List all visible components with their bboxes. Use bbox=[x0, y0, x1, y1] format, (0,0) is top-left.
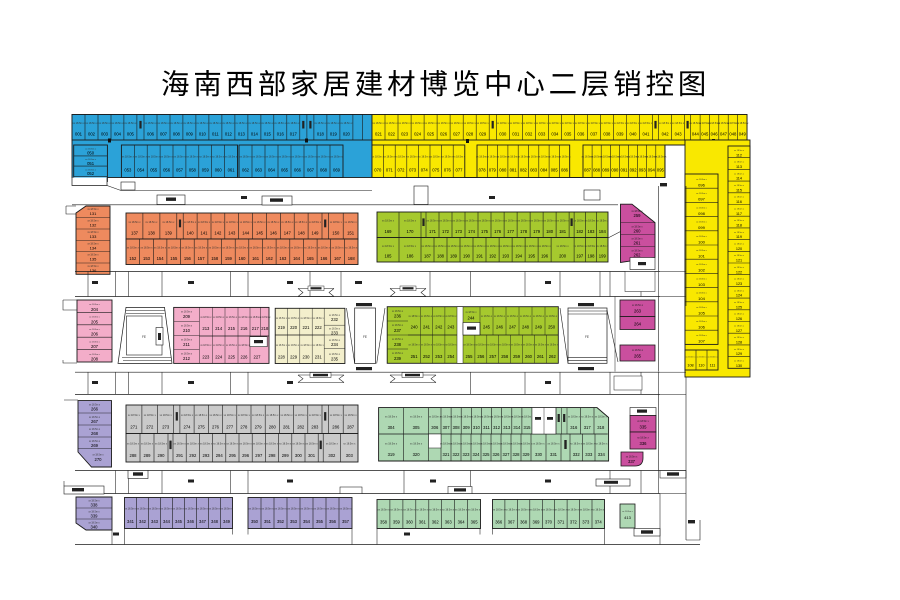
svg-text:260: 260 bbox=[525, 354, 533, 359]
svg-text:162: 162 bbox=[266, 256, 274, 261]
svg-text:166: 166 bbox=[320, 256, 328, 261]
svg-text:036: 036 bbox=[577, 131, 585, 136]
svg-text:xx 18.5m x: xx 18.5m x bbox=[309, 221, 322, 224]
svg-text:xx 18.5m x: xx 18.5m x bbox=[318, 247, 331, 250]
svg-text:332: 332 bbox=[573, 452, 581, 457]
svg-text:xx 18.5m x: xx 18.5m x bbox=[696, 278, 707, 280]
svg-text:143: 143 bbox=[228, 230, 236, 235]
svg-text:362: 362 bbox=[432, 519, 440, 524]
svg-text:207: 207 bbox=[91, 344, 99, 349]
svg-text:xx 18.5m x: xx 18.5m x bbox=[463, 345, 475, 347]
svg-text:xx 18.5m x: xx 18.5m x bbox=[213, 442, 226, 445]
svg-text:xx 18.5m x: xx 18.5m x bbox=[583, 443, 596, 446]
svg-text:365: 365 bbox=[471, 519, 479, 524]
svg-text:054: 054 bbox=[137, 168, 145, 173]
svg-text:043: 043 bbox=[675, 131, 683, 136]
svg-text:093: 093 bbox=[639, 168, 647, 173]
svg-text:xx 18.5m x: xx 18.5m x bbox=[145, 221, 158, 224]
svg-text:125: 125 bbox=[736, 305, 742, 309]
svg-text:xx 18.5m x: xx 18.5m x bbox=[161, 155, 174, 158]
svg-text:xx 18.5m x: xx 18.5m x bbox=[696, 250, 707, 252]
svg-text:219: 219 bbox=[278, 325, 286, 330]
svg-text:082: 082 bbox=[520, 168, 528, 173]
svg-text:277: 277 bbox=[226, 424, 234, 429]
svg-text:xx 18.5m x: xx 18.5m x bbox=[98, 122, 111, 125]
svg-text:300: 300 bbox=[295, 453, 303, 458]
svg-text:xx 18.5m x: xx 18.5m x bbox=[85, 122, 98, 125]
svg-text:xx 18.5m x: xx 18.5m x bbox=[654, 155, 667, 158]
svg-text:xx 18.5m x: xx 18.5m x bbox=[416, 509, 429, 512]
svg-text:131: 131 bbox=[90, 211, 97, 216]
svg-text:xx 18.5m x: xx 18.5m x bbox=[696, 222, 707, 224]
svg-text:344: 344 bbox=[163, 519, 171, 524]
svg-text:343: 343 bbox=[151, 519, 159, 524]
svg-text:074: 074 bbox=[421, 168, 429, 173]
svg-text:355: 355 bbox=[316, 519, 324, 524]
svg-text:xx 18.5m x: xx 18.5m x bbox=[198, 221, 211, 224]
svg-text:xx 18.5m x: xx 18.5m x bbox=[542, 509, 555, 512]
svg-text:056: 056 bbox=[163, 168, 171, 173]
svg-text:051: 051 bbox=[87, 161, 95, 166]
svg-text:xx 18.5m x: xx 18.5m x bbox=[404, 220, 417, 223]
svg-text:209: 209 bbox=[183, 314, 191, 319]
svg-text:331: 331 bbox=[550, 452, 558, 457]
svg-text:xx 18.5m x: xx 18.5m x bbox=[195, 414, 208, 417]
svg-text:298: 298 bbox=[269, 453, 277, 458]
svg-text:xx 18.5m x: xx 18.5m x bbox=[267, 221, 280, 224]
svg-text:067: 067 bbox=[307, 168, 315, 173]
svg-text:xx 18.5m x: xx 18.5m x bbox=[592, 509, 605, 512]
svg-text:324: 324 bbox=[473, 452, 481, 457]
svg-text:xx 18.5m x: xx 18.5m x bbox=[168, 247, 181, 250]
svg-text:102: 102 bbox=[698, 268, 705, 273]
svg-text:118: 118 bbox=[736, 224, 742, 228]
svg-text:xx 18.5m x: xx 18.5m x bbox=[127, 442, 140, 445]
svg-text:xx 18.5m x: xx 18.5m x bbox=[222, 122, 235, 125]
svg-text:316: 316 bbox=[570, 425, 578, 430]
svg-text:336: 336 bbox=[640, 441, 648, 446]
svg-text:xx 18.5m x: xx 18.5m x bbox=[465, 220, 478, 223]
svg-text:xx 18.5m x: xx 18.5m x bbox=[455, 509, 468, 512]
svg-text:326: 326 bbox=[493, 452, 501, 457]
svg-text:xx 18.5m x: xx 18.5m x bbox=[477, 122, 490, 125]
svg-text:019: 019 bbox=[330, 131, 338, 136]
svg-text:012: 012 bbox=[225, 131, 233, 136]
svg-text:xx 18.5m x: xx 18.5m x bbox=[200, 442, 213, 445]
svg-text:xx 18.5m x: xx 18.5m x bbox=[287, 122, 300, 125]
svg-text:106: 106 bbox=[698, 325, 705, 330]
svg-text:xx 18.5m x: xx 18.5m x bbox=[549, 122, 562, 125]
svg-text:282: 282 bbox=[297, 424, 305, 429]
svg-text:210: 210 bbox=[183, 328, 191, 333]
svg-text:189: 189 bbox=[450, 254, 458, 259]
svg-text:347: 347 bbox=[199, 519, 207, 524]
svg-text:065: 065 bbox=[281, 168, 289, 173]
svg-text:306: 306 bbox=[431, 425, 439, 430]
svg-text:141: 141 bbox=[201, 230, 209, 235]
svg-text:003: 003 bbox=[101, 131, 109, 136]
svg-text:320: 320 bbox=[413, 452, 421, 457]
svg-text:070: 070 bbox=[374, 168, 382, 173]
svg-text:xx 18.5m x: xx 18.5m x bbox=[481, 316, 493, 318]
svg-text:167: 167 bbox=[334, 256, 342, 261]
svg-text:208: 208 bbox=[91, 357, 99, 362]
svg-text:278: 278 bbox=[240, 424, 248, 429]
svg-text:xx 18.5m x: xx 18.5m x bbox=[412, 122, 425, 125]
svg-text:xx 18.5m x: xx 18.5m x bbox=[445, 316, 457, 318]
svg-text:xx 18.5m x: xx 18.5m x bbox=[196, 507, 209, 510]
svg-text:315: 315 bbox=[524, 425, 532, 430]
svg-text:xx 18.5m x: xx 18.5m x bbox=[306, 442, 319, 445]
svg-text:249: 249 bbox=[535, 325, 543, 330]
svg-text:309: 309 bbox=[463, 425, 471, 430]
svg-text:xx 18.5m x: xx 18.5m x bbox=[340, 122, 353, 125]
svg-text:095: 095 bbox=[657, 168, 665, 173]
svg-text:058: 058 bbox=[189, 168, 197, 173]
svg-text:xx 18.5m x: xx 18.5m x bbox=[505, 220, 518, 223]
svg-text:024: 024 bbox=[414, 131, 422, 136]
svg-text:354: 354 bbox=[303, 519, 311, 524]
svg-text:xx 18.5m x: xx 18.5m x bbox=[127, 247, 140, 250]
svg-text:xx 18.5m x: xx 18.5m x bbox=[588, 122, 601, 125]
svg-text:006: 006 bbox=[147, 131, 155, 136]
svg-text:372: 372 bbox=[570, 519, 578, 524]
svg-text:319: 319 bbox=[388, 452, 396, 457]
svg-text:335: 335 bbox=[640, 425, 648, 430]
svg-text:120: 120 bbox=[736, 247, 742, 251]
svg-text:364: 364 bbox=[458, 519, 466, 524]
svg-text:040: 040 bbox=[630, 131, 638, 136]
svg-text:064: 064 bbox=[268, 168, 276, 173]
svg-text:094: 094 bbox=[648, 168, 656, 173]
svg-text:005: 005 bbox=[127, 131, 135, 136]
svg-text:360: 360 bbox=[406, 519, 414, 524]
svg-text:349: 349 bbox=[223, 519, 231, 524]
svg-text:xx 18.5m x: xx 18.5m x bbox=[209, 414, 222, 417]
svg-text:251: 251 bbox=[411, 354, 419, 359]
svg-text:114: 114 bbox=[736, 177, 742, 181]
svg-text:xx 18.5m x: xx 18.5m x bbox=[235, 122, 248, 125]
svg-text:xx 18.5m x: xx 18.5m x bbox=[520, 443, 533, 446]
svg-text:128: 128 bbox=[736, 341, 742, 345]
svg-text:154: 154 bbox=[157, 256, 165, 261]
svg-text:055: 055 bbox=[150, 168, 158, 173]
svg-text:xx 18.5m x: xx 18.5m x bbox=[330, 155, 343, 158]
svg-text:xx 18.5m x: xx 18.5m x bbox=[567, 509, 580, 512]
svg-text:194: 194 bbox=[515, 254, 523, 259]
svg-text:206: 206 bbox=[91, 332, 99, 337]
svg-text:xx 18.5m x: xx 18.5m x bbox=[500, 245, 513, 248]
svg-text:xx 18.5m x: xx 18.5m x bbox=[736, 122, 749, 125]
svg-text:242: 242 bbox=[435, 325, 443, 330]
svg-text:xx 18.5m x: xx 18.5m x bbox=[181, 247, 194, 250]
svg-text:xx 18.5m x: xx 18.5m x bbox=[696, 179, 707, 181]
svg-text:262: 262 bbox=[549, 354, 557, 359]
svg-text:199: 199 bbox=[599, 254, 607, 259]
svg-text:225: 225 bbox=[228, 355, 236, 360]
svg-text:xx 18.5m x: xx 18.5m x bbox=[170, 122, 183, 125]
svg-text:048: 048 bbox=[729, 131, 737, 136]
svg-text:216: 216 bbox=[241, 326, 249, 331]
svg-text:257: 257 bbox=[489, 354, 497, 359]
svg-text:133: 133 bbox=[90, 234, 97, 239]
svg-text:317: 317 bbox=[584, 425, 592, 430]
svg-text:053: 053 bbox=[124, 168, 132, 173]
svg-text:240: 240 bbox=[411, 325, 419, 330]
svg-text:025: 025 bbox=[427, 131, 435, 136]
svg-text:172: 172 bbox=[442, 229, 450, 234]
svg-text:xx 18.5m x: xx 18.5m x bbox=[317, 155, 330, 158]
svg-text:xx 18.5m x: xx 18.5m x bbox=[696, 207, 707, 209]
svg-text:xx 18.5m x: xx 18.5m x bbox=[281, 221, 294, 224]
svg-text:127: 127 bbox=[736, 329, 742, 333]
svg-text:xx 18.5m x: xx 18.5m x bbox=[734, 232, 744, 234]
svg-text:151: 151 bbox=[347, 230, 355, 235]
svg-text:xx 18.5m x: xx 18.5m x bbox=[160, 507, 173, 510]
svg-text:xx 18.5m x: xx 18.5m x bbox=[155, 442, 168, 445]
svg-text:xx 18.5m x: xx 18.5m x bbox=[421, 345, 433, 347]
svg-text:246: 246 bbox=[496, 325, 504, 330]
svg-text:xx 18.5m x: xx 18.5m x bbox=[696, 293, 707, 295]
svg-text:xx 18.5m x: xx 18.5m x bbox=[468, 509, 481, 512]
svg-text:101: 101 bbox=[698, 254, 705, 259]
svg-text:152: 152 bbox=[129, 256, 137, 261]
svg-text:333: 333 bbox=[585, 452, 593, 457]
svg-text:xx 18.5m x: xx 18.5m x bbox=[124, 507, 137, 510]
svg-text:204: 204 bbox=[91, 307, 99, 312]
svg-text:247: 247 bbox=[509, 325, 517, 330]
svg-text:363: 363 bbox=[445, 519, 453, 524]
svg-text:xx 18.5m x: xx 18.5m x bbox=[89, 354, 100, 356]
svg-text:337: 337 bbox=[628, 459, 636, 464]
svg-text:xx 18.5m x: xx 18.5m x bbox=[447, 245, 460, 248]
svg-text:xx 18.5m x: xx 18.5m x bbox=[513, 245, 526, 248]
svg-text:039: 039 bbox=[617, 131, 625, 136]
svg-text:xx 18.5m x: xx 18.5m x bbox=[421, 245, 434, 248]
svg-text:190: 190 bbox=[463, 254, 471, 259]
svg-text:xx 18.5m x: xx 18.5m x bbox=[734, 361, 744, 363]
svg-text:xx 18.5m x: xx 18.5m x bbox=[510, 122, 523, 125]
svg-text:045: 045 bbox=[701, 131, 709, 136]
svg-text:022: 022 bbox=[388, 131, 396, 136]
svg-text:xx 18.5m x: xx 18.5m x bbox=[421, 316, 433, 318]
svg-text:170: 170 bbox=[407, 229, 415, 234]
svg-text:258: 258 bbox=[501, 354, 509, 359]
svg-text:310: 310 bbox=[473, 425, 481, 430]
svg-text:367: 367 bbox=[508, 519, 516, 524]
svg-text:xx 18.5m x: xx 18.5m x bbox=[89, 317, 100, 319]
svg-text:307: 307 bbox=[443, 425, 451, 430]
svg-text:xx 18.5m x: xx 18.5m x bbox=[532, 443, 545, 446]
svg-text:287: 287 bbox=[347, 424, 355, 429]
svg-text:029: 029 bbox=[479, 131, 487, 136]
svg-text:297: 297 bbox=[255, 453, 263, 458]
svg-text:229: 229 bbox=[290, 355, 298, 360]
svg-text:283: 283 bbox=[311, 424, 319, 429]
svg-text:302: 302 bbox=[328, 453, 336, 458]
svg-text:370: 370 bbox=[545, 519, 553, 524]
svg-text:xx 18.5m x: xx 18.5m x bbox=[187, 442, 200, 445]
svg-text:034: 034 bbox=[551, 131, 559, 136]
svg-text:xx 18.5m x: xx 18.5m x bbox=[507, 316, 519, 318]
svg-text:129: 129 bbox=[736, 352, 742, 356]
svg-text:107: 107 bbox=[698, 339, 705, 344]
svg-text:xx 18.5m x: xx 18.5m x bbox=[580, 509, 593, 512]
svg-text:xx 18.5m x: xx 18.5m x bbox=[287, 507, 300, 510]
svg-text:164: 164 bbox=[293, 256, 301, 261]
svg-text:215: 215 bbox=[228, 326, 236, 331]
svg-text:068: 068 bbox=[320, 168, 328, 173]
svg-text:xx 18.5m x: xx 18.5m x bbox=[278, 155, 291, 158]
svg-text:192: 192 bbox=[489, 254, 497, 259]
svg-text:xx 18.5m x: xx 18.5m x bbox=[568, 416, 581, 419]
svg-text:180: 180 bbox=[546, 229, 554, 234]
svg-text:153: 153 bbox=[143, 256, 151, 261]
svg-text:072: 072 bbox=[398, 168, 406, 173]
svg-text:163: 163 bbox=[279, 256, 287, 261]
svg-text:033: 033 bbox=[538, 131, 546, 136]
svg-text:xx 18.5m x: xx 18.5m x bbox=[390, 509, 403, 512]
svg-text:xx 18.5m x: xx 18.5m x bbox=[309, 414, 322, 417]
svg-text:xx 18.5m x: xx 18.5m x bbox=[89, 304, 100, 306]
svg-text:140: 140 bbox=[187, 230, 195, 235]
svg-text:193: 193 bbox=[502, 254, 510, 259]
svg-text:413: 413 bbox=[624, 515, 631, 520]
svg-text:014: 014 bbox=[251, 131, 259, 136]
svg-text:110: 110 bbox=[698, 363, 704, 367]
svg-text:115: 115 bbox=[736, 188, 742, 192]
svg-text:108: 108 bbox=[687, 363, 693, 367]
svg-text:xx 18.5m x: xx 18.5m x bbox=[339, 507, 352, 510]
svg-text:xx 18.5m x: xx 18.5m x bbox=[89, 329, 100, 331]
svg-text:xx 18.5m x: xx 18.5m x bbox=[547, 443, 560, 446]
svg-text:030: 030 bbox=[499, 131, 507, 136]
svg-text:254: 254 bbox=[447, 354, 455, 359]
svg-text:356: 356 bbox=[329, 519, 337, 524]
svg-text:xx 18.5m x: xx 18.5m x bbox=[557, 245, 570, 248]
svg-text:xx 18.5m x: xx 18.5m x bbox=[345, 414, 358, 417]
svg-text:049: 049 bbox=[739, 131, 747, 136]
svg-text:061: 061 bbox=[228, 168, 236, 173]
svg-text:275: 275 bbox=[198, 424, 206, 429]
svg-text:161: 161 bbox=[252, 256, 260, 261]
svg-text:084: 084 bbox=[540, 168, 548, 173]
svg-text:224: 224 bbox=[215, 355, 223, 360]
svg-text:089: 089 bbox=[602, 168, 610, 173]
svg-text:328: 328 bbox=[513, 452, 521, 457]
svg-text:123: 123 bbox=[736, 282, 742, 286]
svg-text:230: 230 bbox=[303, 355, 311, 360]
svg-text:100: 100 bbox=[698, 239, 705, 244]
svg-text:xx 18.5m x: xx 18.5m x bbox=[473, 245, 486, 248]
svg-text:197: 197 bbox=[576, 254, 584, 259]
svg-text:235: 235 bbox=[331, 356, 339, 361]
svg-text:273: 273 bbox=[162, 424, 170, 429]
svg-text:xx 18.5m x: xx 18.5m x bbox=[734, 208, 744, 210]
svg-text:xx 18.5m x: xx 18.5m x bbox=[122, 155, 135, 158]
svg-text:xx 18.5m x: xx 18.5m x bbox=[410, 416, 423, 419]
svg-text:105: 105 bbox=[698, 310, 705, 315]
svg-text:xx 18.5m x: xx 18.5m x bbox=[734, 185, 744, 187]
svg-text:159: 159 bbox=[225, 256, 233, 261]
svg-text:037: 037 bbox=[590, 131, 598, 136]
svg-text:041: 041 bbox=[643, 131, 651, 136]
svg-text:xx 18.5m x: xx 18.5m x bbox=[570, 443, 583, 446]
svg-text:xx 18.5m x: xx 18.5m x bbox=[686, 357, 696, 359]
svg-text:xx 18.5m x: xx 18.5m x bbox=[555, 509, 568, 512]
svg-text:xx 18.5m x: xx 18.5m x bbox=[696, 264, 707, 266]
svg-text:xx 18.5m x: xx 18.5m x bbox=[533, 316, 545, 318]
svg-text:226: 226 bbox=[241, 355, 249, 360]
svg-text:044: 044 bbox=[692, 131, 700, 136]
svg-text:xx 18.5m x: xx 18.5m x bbox=[478, 220, 491, 223]
svg-text:xx 18.5m x: xx 18.5m x bbox=[518, 220, 531, 223]
svg-text:xx 18.5m x: xx 18.5m x bbox=[596, 220, 609, 223]
svg-text:174: 174 bbox=[468, 229, 476, 234]
svg-text:xx 18.5m x: xx 18.5m x bbox=[209, 122, 222, 125]
svg-text:279: 279 bbox=[255, 424, 263, 429]
svg-text:080: 080 bbox=[499, 168, 507, 173]
svg-text:FE: FE bbox=[585, 335, 589, 339]
svg-text:243: 243 bbox=[447, 325, 455, 330]
svg-text:132: 132 bbox=[90, 223, 97, 228]
svg-text:292: 292 bbox=[189, 453, 197, 458]
svg-text:xx 18.5m x: xx 18.5m x bbox=[140, 247, 153, 250]
svg-text:175: 175 bbox=[481, 229, 489, 234]
svg-text:xx 18.5m x: xx 18.5m x bbox=[236, 247, 249, 250]
svg-text:xx 18.5m x: xx 18.5m x bbox=[409, 316, 421, 318]
svg-text:286: 286 bbox=[332, 424, 340, 429]
svg-text:052: 052 bbox=[87, 171, 95, 176]
svg-text:xx 18.5m x: xx 18.5m x bbox=[160, 414, 173, 417]
svg-text:xx 18.5m x: xx 18.5m x bbox=[734, 290, 744, 292]
svg-text:xx 18.5m x: xx 18.5m x bbox=[209, 247, 222, 250]
svg-text:xx 18.5m x: xx 18.5m x bbox=[89, 341, 100, 343]
svg-text:xx 18.5m x: xx 18.5m x bbox=[734, 302, 744, 304]
svg-text:330: 330 bbox=[535, 452, 543, 457]
svg-text:169: 169 bbox=[385, 229, 393, 234]
svg-text:xx 18.5m x: xx 18.5m x bbox=[238, 317, 250, 319]
svg-text:xx 18.5m x: xx 18.5m x bbox=[111, 122, 124, 125]
svg-text:301: 301 bbox=[308, 453, 316, 458]
svg-text:223: 223 bbox=[202, 355, 210, 360]
svg-text:xx 18.5m x: xx 18.5m x bbox=[326, 442, 339, 445]
svg-text:073: 073 bbox=[409, 168, 417, 173]
svg-text:050: 050 bbox=[87, 151, 95, 156]
svg-text:304: 304 bbox=[388, 425, 396, 430]
svg-text:357: 357 bbox=[342, 519, 350, 524]
svg-text:016: 016 bbox=[277, 131, 285, 136]
svg-text:008: 008 bbox=[173, 131, 181, 136]
svg-text:181: 181 bbox=[559, 229, 567, 234]
svg-text:xx 18.5m x: xx 18.5m x bbox=[313, 507, 326, 510]
svg-text:090: 090 bbox=[611, 168, 619, 173]
svg-text:xx 18.5m x: xx 18.5m x bbox=[734, 162, 744, 164]
svg-text:xx 18.5m x: xx 18.5m x bbox=[238, 414, 251, 417]
svg-text:261: 261 bbox=[537, 354, 545, 359]
svg-text:325: 325 bbox=[483, 452, 491, 457]
svg-text:271: 271 bbox=[130, 424, 138, 429]
svg-text:xx 18.5m x: xx 18.5m x bbox=[148, 155, 161, 158]
svg-text:xx 18.5m x: xx 18.5m x bbox=[595, 443, 608, 446]
svg-text:xx 18.5m x: xx 18.5m x bbox=[575, 122, 588, 125]
svg-text:264: 264 bbox=[634, 322, 642, 327]
svg-text:062: 062 bbox=[242, 168, 250, 173]
svg-text:097: 097 bbox=[698, 197, 705, 202]
svg-text:xx 18.5m x: xx 18.5m x bbox=[213, 317, 225, 319]
svg-text:xx 18.5m x: xx 18.5m x bbox=[184, 507, 197, 510]
svg-text:xx 18.5m x: xx 18.5m x bbox=[186, 155, 199, 158]
